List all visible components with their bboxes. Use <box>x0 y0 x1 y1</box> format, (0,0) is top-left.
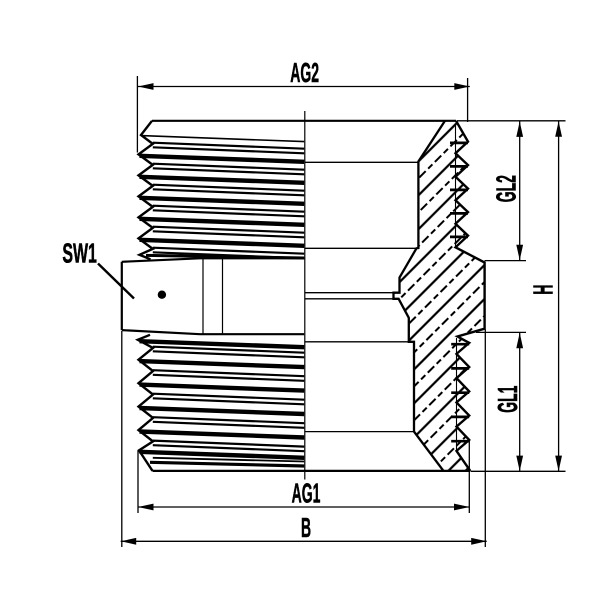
svg-text:GL1: GL1 <box>492 386 524 413</box>
svg-text:SW1: SW1 <box>62 237 97 269</box>
svg-text:GL2: GL2 <box>490 175 522 202</box>
svg-text:B: B <box>301 512 311 544</box>
svg-text:AG2: AG2 <box>290 57 319 89</box>
svg-text:H: H <box>527 285 559 295</box>
svg-text:AG1: AG1 <box>292 477 321 509</box>
